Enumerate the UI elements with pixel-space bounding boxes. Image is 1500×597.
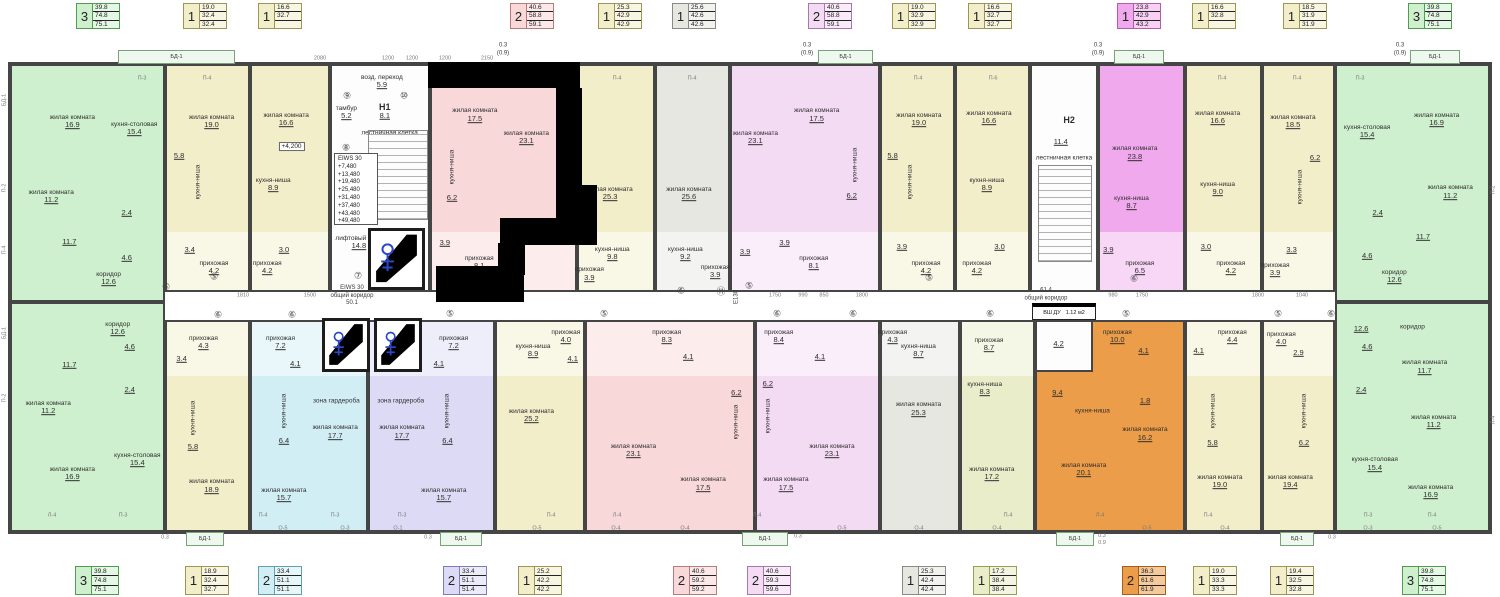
tag-room-count: 1 <box>893 4 909 28</box>
tag-room-count: 3 <box>76 567 92 594</box>
tag-area-value: 75.1 <box>1419 586 1445 594</box>
apartment-tag[interactable]: 116.632.7 <box>258 3 302 29</box>
room-label: 3.4 <box>184 245 194 253</box>
tag-area-value: 32.4 <box>202 576 228 585</box>
room-label: 4.6 <box>125 343 135 351</box>
balcony: БД-1 <box>1410 50 1460 64</box>
tag-areas: 40.658.859.1 <box>825 4 851 28</box>
tag-room-count: 1 <box>1118 4 1134 28</box>
annotation: О-4 <box>914 526 923 533</box>
apartment-tag[interactable]: 123.842.943.2 <box>1117 3 1161 29</box>
room-label: зона гардероба <box>313 397 360 404</box>
tag-room-count: 1 <box>184 4 200 28</box>
room-label: жилая комната11.2 <box>29 189 74 205</box>
room-label: прихожая3.9 <box>701 264 730 280</box>
annotation: 0.3 <box>794 534 802 541</box>
annotation: О-3 <box>1363 526 1372 533</box>
room-label: кухня-ниша <box>1209 394 1216 429</box>
annotation: П-3 <box>138 76 147 83</box>
annotation: Л-4 <box>1096 513 1105 520</box>
room-label: жилая комната19.0 <box>189 114 234 130</box>
apartment-tag[interactable]: 118.932.432.7 <box>185 566 229 595</box>
balcony: БД-1 <box>1114 50 1164 64</box>
tag-areas: 16.632.7 <box>275 4 301 28</box>
apt-1k-16-6-top-a[interactable]: жилая комната16.6+4,200кухня-ниша8.93.0п… <box>250 64 330 292</box>
annotation: 850 <box>819 293 828 300</box>
tag-area-value: 32.4 <box>200 12 226 20</box>
tag-areas: 18.531.931.9 <box>1300 4 1326 28</box>
room-label: 3.9 <box>1103 245 1113 253</box>
tag-area-value: 32.7 <box>275 12 301 20</box>
apt-1k-25-6-top[interactable]: жилая комната25.6кухня-ниша9.2прихожая3.… <box>655 64 730 292</box>
room-label: жилая комната11.7 <box>1402 359 1447 375</box>
room-label: прихожая8.1 <box>465 255 494 271</box>
tag-areas: 19.032.932.9 <box>909 4 935 28</box>
room-label: 4.1 <box>683 353 693 361</box>
tag-room-count: 1 <box>673 4 689 28</box>
room-label: жилая комната23.1 <box>504 130 549 146</box>
room-label: Н2 <box>1063 115 1075 125</box>
circled-number: ⑥ <box>162 282 170 293</box>
annotation: О-4 <box>680 526 689 533</box>
tag-room-count: 1 <box>1194 567 1210 594</box>
annotation: 2080 <box>314 56 326 63</box>
room-label: кухня-ниша9.2 <box>668 246 703 262</box>
annotation: П-4 <box>203 76 212 83</box>
tag-area-value <box>1209 21 1235 28</box>
annotation: Е130 <box>733 290 741 304</box>
tag-area-value: 59.3 <box>764 576 790 585</box>
apartment-tag[interactable]: 240.659.259.2 <box>673 566 717 595</box>
room-label: жилая комната17.5 <box>794 107 839 123</box>
room-label: жилая комната17.5 <box>452 107 497 123</box>
tag-room-count: 1 <box>974 567 990 594</box>
apt-2k-58-8-top-right[interactable]: жилая комната23.1жилая комната17.5кухня-… <box>730 64 880 292</box>
room-label: 1.8 <box>1140 397 1150 405</box>
apt-2k-58-8-top-left[interactable]: жилая комната17.5кухня-ниша6.2жилая комн… <box>430 64 577 292</box>
apt-1k-16-6-top-b[interactable]: жилая комната16.6кухня-ниша8.93.0прихожа… <box>955 64 1030 292</box>
tag-areas: 25.342.442.4 <box>919 567 945 594</box>
apartment-tag[interactable]: 240.659.359.6 <box>747 566 791 595</box>
tag-room-count: 3 <box>1409 4 1425 28</box>
annotation: Л-4 <box>48 513 57 520</box>
tag-area-value: 42.9 <box>1134 12 1160 20</box>
circled-number: ⑤ <box>1274 309 1282 320</box>
tag-room-count: 3 <box>77 4 93 28</box>
apt-1k-18-9-bottom[interactable]: прихожая4.33.4кухня-ниша5.8жилая комната… <box>165 320 250 532</box>
room-label: жилая комната18.5 <box>1270 114 1315 130</box>
room-label: 11.7 <box>62 237 76 245</box>
tag-area-value: 33.4 <box>460 567 486 576</box>
tag-area-value: 19.0 <box>909 4 935 12</box>
tag-area-value: 17.2 <box>990 567 1016 576</box>
tag-area-value: 42.4 <box>919 576 945 585</box>
annotation: 1800 <box>1252 293 1264 300</box>
room-label: прихожая4.3 <box>878 329 907 345</box>
room-label: жилая комната16.2 <box>1122 426 1167 442</box>
tag-areas: 25.242.242.2 <box>535 567 561 594</box>
room-label: 2.4 <box>125 386 135 394</box>
tag-area-value: 25.6 <box>689 4 715 12</box>
tag-area-value: 61.9 <box>1139 586 1165 594</box>
room-label: кухня-ниша <box>189 400 196 435</box>
circled-number: ⑤ <box>1122 309 1130 320</box>
tag-areas: 36.361.661.9 <box>1139 567 1165 594</box>
annotation: 1810 <box>237 293 249 300</box>
elevator-shaft <box>368 228 425 290</box>
circled-number: ⑥ <box>677 286 685 297</box>
apartment-tag[interactable]: 240.658.859.1 <box>510 3 554 29</box>
apartment-tag[interactable]: 240.658.859.1 <box>808 3 852 29</box>
annotation: 1500 <box>304 293 316 300</box>
room-label: 5.8 <box>887 151 897 159</box>
apartment-tag[interactable]: 339.874.875.1 <box>1408 3 1452 29</box>
apartment-tag[interactable]: 119.032.432.4 <box>183 3 227 29</box>
apt-1k-19-0-top[interactable]: жилая комната19.05.8кухня-ниша3.4прихожа… <box>165 64 250 292</box>
annotation: О-1 <box>393 526 402 533</box>
room-label: жилая комната16.9 <box>1414 112 1459 128</box>
circled-number: ⑥ <box>288 310 296 321</box>
apartment-tag[interactable]: 339.874.875.1 <box>76 3 120 29</box>
room-label: кухня-ниша8.7 <box>901 343 936 359</box>
tag-area-value: 31.9 <box>1300 12 1326 20</box>
tag-areas: 39.874.875.1 <box>1425 4 1451 28</box>
tag-room-count: 2 <box>259 567 275 594</box>
annotation: О-4 <box>992 526 1001 533</box>
room-label: кухня-ниша <box>1296 170 1303 205</box>
annotation: 1200 <box>439 56 451 63</box>
annotation: П-3 <box>331 513 340 520</box>
room-label: 2.9 <box>1293 349 1303 357</box>
room-label: жилая комната16.6 <box>1195 110 1240 126</box>
apt-3k-top-left[interactable]: жилая комната16.9кухня-столовая15.4жилая… <box>10 64 165 302</box>
apartment-tag[interactable]: 125.342.442.4 <box>902 566 946 595</box>
tag-area-value: 32.4 <box>200 21 226 28</box>
room-label: 6.2 <box>763 380 773 388</box>
annotation: П-4 <box>2 246 9 255</box>
apt-1k-18-5-top[interactable]: жилая комната18.56.2кухня-ниша3.3прихожа… <box>1262 64 1335 292</box>
annotation: Л-4 <box>1491 416 1498 425</box>
tag-areas: 19.432.532.8 <box>1287 567 1313 594</box>
apt-1k-17-2-bottom[interactable]: прихожая8.7кухня-ниша8.3жилая комната17.… <box>960 320 1035 532</box>
room-label: 6.4 <box>442 436 452 444</box>
room-label: 11.4 <box>1054 138 1068 146</box>
annotation: О-5 <box>837 526 846 533</box>
annotation: Л-4 <box>753 513 762 520</box>
room-label: жилая комната17.5 <box>681 476 726 492</box>
tag-area-value: 33.3 <box>1210 576 1236 585</box>
apartment-tag[interactable]: 119.033.333.3 <box>1193 566 1237 595</box>
annotation: 1200 <box>406 56 418 63</box>
annotation: П-3 <box>398 513 407 520</box>
room-label: кухня-столовая15.4 <box>111 121 157 137</box>
apartment-tag[interactable]: 116.632.732.7 <box>968 3 1012 29</box>
room-label: 6.4 <box>279 436 289 444</box>
tag-area-value: 59.2 <box>690 576 716 585</box>
room-label: 6.2 <box>847 192 857 200</box>
tag-areas: 18.932.432.7 <box>202 567 228 594</box>
tag-area-value: 51.1 <box>460 576 486 585</box>
elevation-marks-list: ЕIWS 30 +7,480 +13,480 +19,480 +25,480 +… <box>334 153 378 225</box>
room-label: кухня-столовая15.4 <box>1352 457 1398 473</box>
tag-area-value: 59.6 <box>764 586 790 594</box>
tag-area-value: 32.9 <box>909 21 935 28</box>
circled-number: ⑤ <box>600 309 608 320</box>
apartment-tag[interactable]: 125.242.242.2 <box>518 566 562 595</box>
annotation: 0.3 0.9 <box>1098 533 1106 547</box>
tag-area-value: 59.1 <box>825 21 851 28</box>
apt-3k-bottom-left[interactable]: коридор12.64.611.72.4жилая комната11.2жи… <box>10 302 165 532</box>
tag-area-value: 32.5 <box>1287 576 1313 585</box>
room-label: жилая комната19.4 <box>1268 474 1313 490</box>
tag-room-count: 2 <box>444 567 460 594</box>
tag-area-value: 40.6 <box>825 4 851 12</box>
room-label: прихожая10.0 <box>1103 329 1132 345</box>
annotation: 1040 <box>1296 293 1308 300</box>
tag-area-value: 40.6 <box>764 567 790 576</box>
apartment-tag[interactable]: 233.451.151.4 <box>443 566 487 595</box>
apt-1k-19-4-bottom[interactable]: прихожая4.02.9кухня-ниша6.2жилая комната… <box>1262 320 1335 532</box>
room-label: жилая комната16.9 <box>50 466 95 482</box>
tag-areas: 23.842.943.2 <box>1134 4 1160 28</box>
annotation: О-5 <box>278 526 287 533</box>
apartment-tag[interactable]: 236.361.661.9 <box>1122 566 1166 595</box>
room-label: прихожая4.2 <box>962 260 991 276</box>
apt-3k-top-right[interactable]: кухня-столовая15.4жилая комната16.9жилая… <box>1335 64 1490 302</box>
room-label: 4.1 <box>290 359 300 367</box>
room-label: жилая комната17.7 <box>313 424 358 440</box>
tag-area-value: 36.3 <box>1139 567 1165 576</box>
room-label: прихожая8.3 <box>652 329 681 345</box>
annotation: О-4 <box>611 526 620 533</box>
annotation: 0.3 <box>424 535 432 542</box>
tag-area-value: 16.6 <box>1209 4 1235 12</box>
room-label: прихожая4.4 <box>1218 329 1247 345</box>
annotation: П-3 <box>1356 76 1365 83</box>
apt-3k-bottom-right[interactable]: 12.6коридор4.6жилая комната11.72.4жилая … <box>1335 302 1490 532</box>
tag-area-value: 19.0 <box>200 4 226 12</box>
room-label: жилая комната20.1 <box>1061 462 1106 478</box>
annotation: П-4 <box>547 513 556 520</box>
apartment-tag[interactable]: 233.451.151.1 <box>258 566 302 595</box>
room-label: жилая комната19.0 <box>1197 474 1242 490</box>
room-label: жилая комната25.6 <box>666 186 711 202</box>
apt-1k-16-6-top-c[interactable]: жилая комната16.6кухня-ниша9.03.0прихожа… <box>1185 64 1262 292</box>
tag-area-value: 31.9 <box>1300 21 1326 28</box>
tag-area-value: 32.9 <box>909 12 935 20</box>
apt-1k-25-2-bottom[interactable]: кухня-ниша8.9прихожая4.04.1жилая комната… <box>495 320 585 532</box>
tag-areas: 16.632.8 <box>1209 4 1235 28</box>
annotation: П-4 <box>259 513 268 520</box>
annotation: 1750 <box>769 293 781 300</box>
tag-area-value: 33.3 <box>1210 586 1236 594</box>
circled-number: ⑥ <box>1130 274 1138 285</box>
room-label: 4.6 <box>1362 251 1372 259</box>
tag-areas: 25.642.642.6 <box>689 4 715 28</box>
annotation: 1200 <box>382 56 394 63</box>
room-label: 6.2 <box>447 194 457 202</box>
tag-area-value: 74.8 <box>1425 12 1451 20</box>
annotation: П-4 <box>1204 513 1213 520</box>
ventilation-duct-box: ВШ ДУ1.12 м2 <box>1032 303 1096 320</box>
balcony: БД-1 <box>440 532 482 546</box>
tag-area-value: 33.4 <box>275 567 301 576</box>
room-label: 2.4 <box>1373 209 1383 217</box>
room-label: 2.4 <box>1356 386 1366 394</box>
elevator-shaft <box>322 318 370 372</box>
circled-number: ⑪ <box>716 285 725 298</box>
room-label: жилая комната16.6 <box>264 112 309 128</box>
apt-1k-19-0-top-b[interactable]: жилая комната19.05.8кухня-ниша3.9прихожа… <box>880 64 955 292</box>
annotation: О-3 <box>340 526 349 533</box>
tag-room-count: 1 <box>519 567 535 594</box>
apartment-tag[interactable]: 339.874.875.1 <box>75 566 119 595</box>
apt-1k-25-3-bottom[interactable]: прихожая4.3кухня-ниша8.7жилая комната25.… <box>880 320 960 532</box>
circled-number: ⑦ <box>354 271 362 282</box>
annotation: 1800 <box>856 293 868 300</box>
room-label: кухня-ниша <box>448 149 455 184</box>
room-label: 4.1 <box>1193 347 1203 355</box>
annotation: П-2 <box>1491 186 1498 195</box>
apartment-tag[interactable]: 339.874.875.1 <box>1402 566 1446 595</box>
room-label: 5.8 <box>174 151 184 159</box>
room-label: жилая комната18.9 <box>189 478 234 494</box>
elevator-shaft <box>374 318 422 372</box>
room-label: коридор <box>1400 323 1425 330</box>
tag-room-count: 2 <box>1123 567 1139 594</box>
room-label: 5.8 <box>188 443 198 451</box>
annotation: П-4 <box>688 76 697 83</box>
annotation: О-5 <box>1432 526 1441 533</box>
room-label: жилая комната25.3 <box>896 402 941 418</box>
balcony: БД-1 <box>1056 532 1094 546</box>
tag-area-value: 74.8 <box>1419 576 1445 585</box>
apt-1k-25-3-top[interactable]: жилая комната25.3кухня-ниша9.8прихожая3.… <box>577 64 655 292</box>
annotation: П-3 <box>1364 513 1373 520</box>
room-label: прихожая4.2 <box>1216 260 1245 276</box>
room-label: 6.2 <box>731 389 741 397</box>
annotation: БД-1 <box>2 327 9 339</box>
circled-number: ⑧ <box>342 143 350 154</box>
tag-area-value: 58.8 <box>527 12 553 20</box>
circled-number: ⑤ <box>745 281 753 292</box>
annotation: 0.3 (0.9) <box>801 43 813 58</box>
tag-area-value: 18.5 <box>1300 4 1326 12</box>
room-label: жилая комната17.5 <box>763 476 808 492</box>
tag-areas: 39.874.875.1 <box>93 4 119 28</box>
tag-areas: 39.874.875.1 <box>1419 567 1445 594</box>
annotation: 2150 <box>481 56 493 63</box>
room-label: Н18.1 <box>379 102 391 120</box>
tag-area-value: 61.6 <box>1139 576 1165 585</box>
apartment-tag[interactable]: 117.238.438.4 <box>973 566 1017 595</box>
tag-area-value: 39.8 <box>1419 567 1445 576</box>
tag-room-count: 1 <box>259 4 275 28</box>
apartment-tag[interactable]: 119.432.532.8 <box>1270 566 1314 595</box>
annotation: 980 <box>1108 293 1117 300</box>
tag-areas: 39.874.875.1 <box>92 567 118 594</box>
balcony: БД-1 <box>186 532 224 546</box>
room-label: 3.3 <box>1286 245 1296 253</box>
room-label: кухня-столовая15.4 <box>1344 124 1390 140</box>
tag-areas: 19.032.432.4 <box>200 4 226 28</box>
circled-number: ⑤ <box>446 309 454 320</box>
room-label: 6.2 <box>1310 154 1320 162</box>
tag-areas: 25.342.942.9 <box>615 4 641 28</box>
annotation: О-3 <box>457 64 466 71</box>
room-label: кухня-ниша <box>444 394 451 429</box>
tag-area-value: 38.4 <box>990 576 1016 585</box>
circled-number: ⑤ <box>925 273 933 284</box>
room-label: кухня-ниша <box>907 165 914 200</box>
room-label: прихожая8.7 <box>974 337 1003 353</box>
apartment-tag[interactable]: 125.342.942.9 <box>598 3 642 29</box>
apartment-tag[interactable]: 125.642.642.6 <box>672 3 716 29</box>
tag-area-value: 40.6 <box>527 4 553 12</box>
balcony: БД-1 <box>1280 532 1314 546</box>
room-label: возд. переход5.9 <box>361 74 403 90</box>
tag-area-value: 75.1 <box>92 586 118 594</box>
tag-area-value: 51.4 <box>460 586 486 594</box>
tag-area-value: 16.6 <box>985 4 1011 12</box>
tag-area-value: 59.1 <box>527 21 553 28</box>
tag-area-value: 75.1 <box>1425 21 1451 28</box>
room-label: жилая комната11.2 <box>26 400 71 416</box>
room-label: 5.8 <box>1207 438 1217 446</box>
annotation: П-4 <box>613 76 622 83</box>
room-label: 11.7 <box>1416 233 1430 241</box>
tag-area-value: 32.8 <box>1287 586 1313 594</box>
room-label: 4.1 <box>815 353 825 361</box>
apt-1k-23-8-top[interactable]: жилая комната23.8кухня-ниша8.73.9прихожа… <box>1098 64 1185 292</box>
tag-area-value: 42.9 <box>615 12 641 20</box>
room-label: 4.1 <box>1138 347 1148 355</box>
tag-area-value: 32.7 <box>202 586 228 594</box>
annotation: ЕIWS 30 общий коридор 50.1 <box>331 285 374 308</box>
tag-areas: 17.238.438.4 <box>990 567 1016 594</box>
annotation: П-2 <box>2 184 9 193</box>
tag-area-value: 40.6 <box>690 567 716 576</box>
tag-areas: 33.451.151.1 <box>275 567 301 594</box>
apartment-tag[interactable]: 116.632.8 <box>1192 3 1236 29</box>
apartment-tag[interactable]: 118.531.931.9 <box>1283 3 1327 29</box>
annotation: П-4 <box>1004 513 1013 520</box>
room-label: прихожая8.1 <box>799 255 828 271</box>
room-label: 4.2 <box>1053 339 1063 347</box>
tag-area-value <box>275 21 301 28</box>
room-label: жилая комната16.6 <box>966 110 1011 126</box>
tag-room-count: 1 <box>1193 4 1209 28</box>
room-label: жилая комната16.9 <box>1408 484 1453 500</box>
apt-2k-59-3-bottom[interactable]: прихожая8.44.16.2кухня-нишажилая комната… <box>755 320 880 532</box>
apt-1k-19-0-bottom[interactable]: прихожая4.44.1кухня-ниша5.8жилая комната… <box>1185 320 1262 532</box>
circled-number: ⑥ <box>849 309 857 320</box>
tag-area-value: 42.6 <box>689 21 715 28</box>
room-label: жилая комната23.1 <box>733 130 778 146</box>
apt-2k-59-2-bottom[interactable]: прихожая8.34.1жилая комната23.16.2кухня-… <box>585 320 755 532</box>
room-label: кухня-ниша <box>851 147 858 182</box>
tag-room-count: 2 <box>674 567 690 594</box>
tag-area-value: 75.1 <box>93 21 119 28</box>
room-label: жилая комната25.2 <box>509 408 554 424</box>
tag-area-value: 38.4 <box>990 586 1016 594</box>
annotation: О-4 <box>1220 526 1229 533</box>
apartment-tag[interactable]: 119.032.932.9 <box>892 3 936 29</box>
balcony: БД-1 <box>118 50 235 64</box>
room-label: жилая комната16.9 <box>50 114 95 130</box>
annotation: П-3 <box>119 513 128 520</box>
tag-area-value: 74.8 <box>92 576 118 585</box>
